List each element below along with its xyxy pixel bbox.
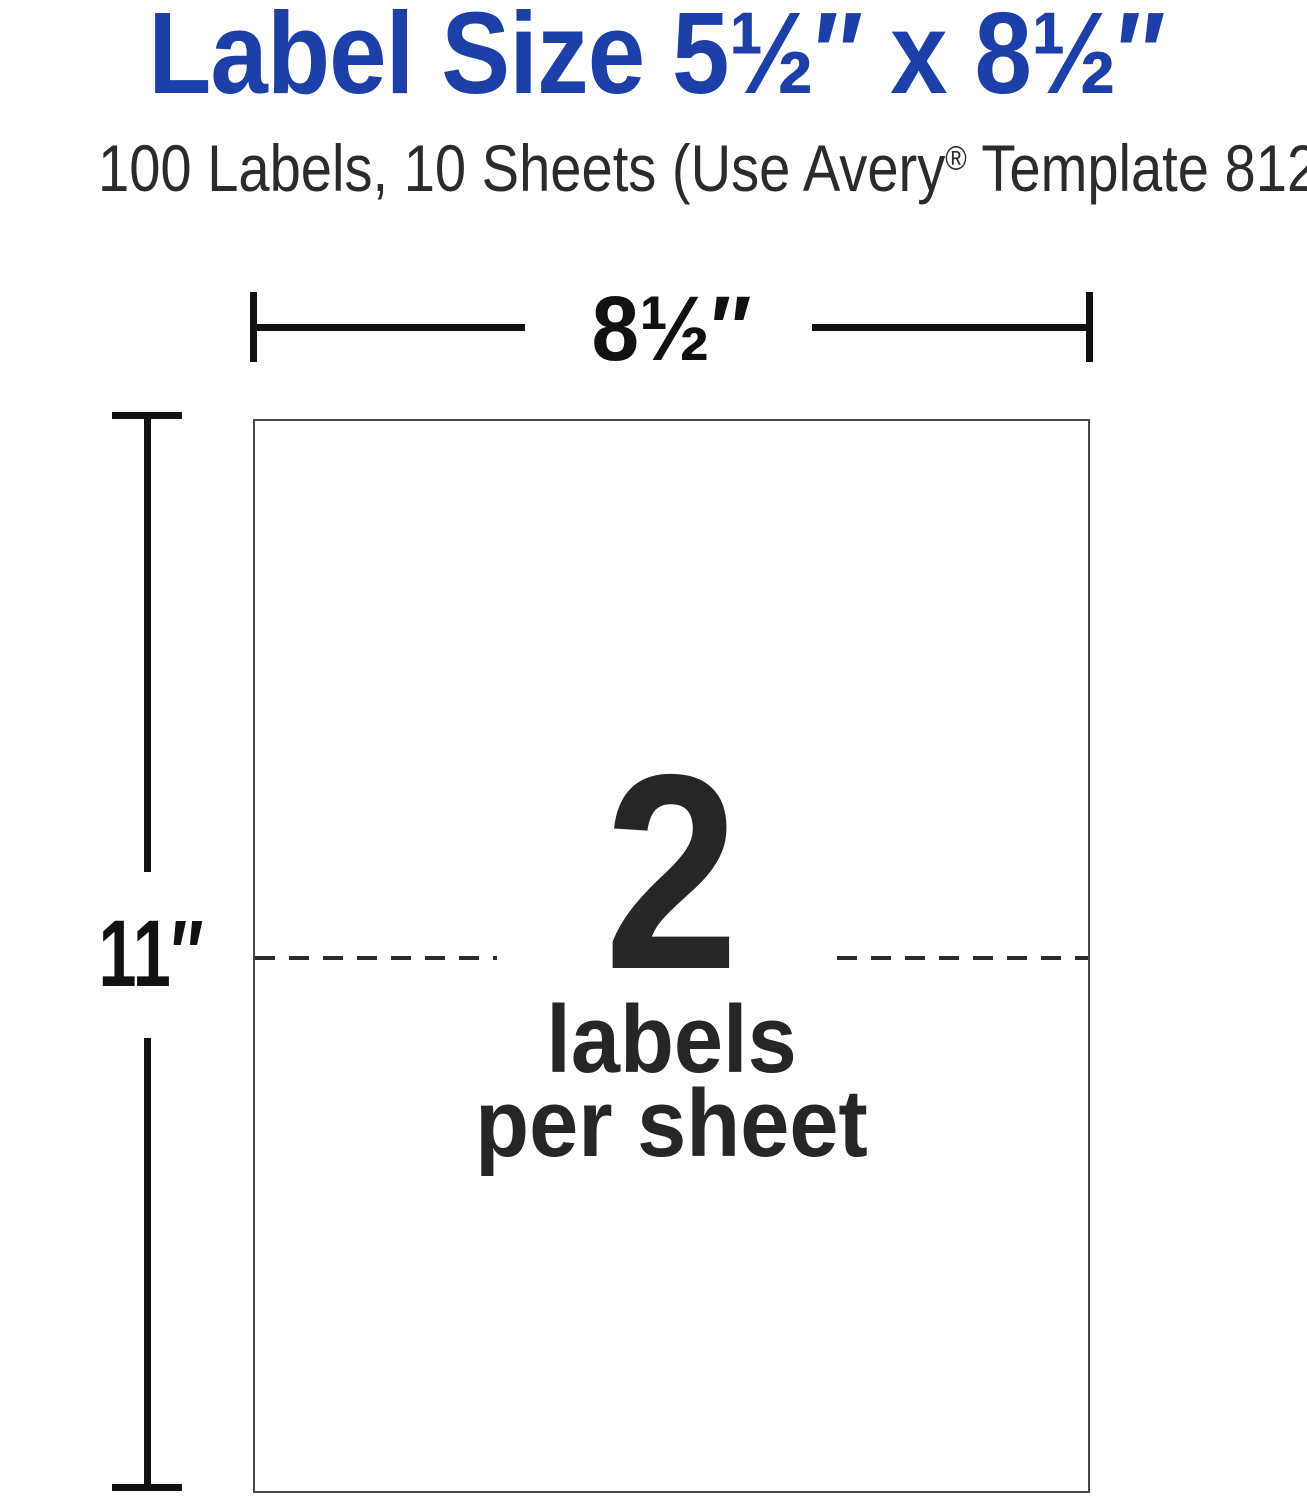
sheet-outline: 2 labels per sheet bbox=[253, 419, 1090, 1493]
height-dimension-top-line bbox=[144, 415, 151, 872]
page-title: Label Size 5½″ x 8½″ bbox=[78, 0, 1236, 118]
height-dimension-bottom-cap bbox=[112, 1484, 182, 1491]
registered-trademark-symbol: ® bbox=[945, 140, 967, 178]
labels-per-sheet-caption-line2: per sheet bbox=[288, 1070, 1054, 1177]
subtitle-text-post: Template 8126) bbox=[967, 131, 1307, 205]
page-subtitle: 100 Labels, 10 Sheets (Use Avery® Templa… bbox=[98, 131, 1209, 205]
label-size-diagram: Label Size 5½″ x 8½″ 100 Labels, 10 Shee… bbox=[0, 0, 1307, 1500]
subtitle-text-pre: 100 Labels, 10 Sheets (Use Avery bbox=[98, 131, 945, 205]
width-dimension-right-line bbox=[812, 324, 1090, 331]
height-dimension-bottom-line bbox=[144, 1038, 151, 1489]
width-dimension-right-tick bbox=[1086, 292, 1093, 362]
height-dimension-label: 11″ bbox=[86, 901, 216, 1007]
labels-per-sheet-count: 2 bbox=[309, 716, 1034, 1027]
